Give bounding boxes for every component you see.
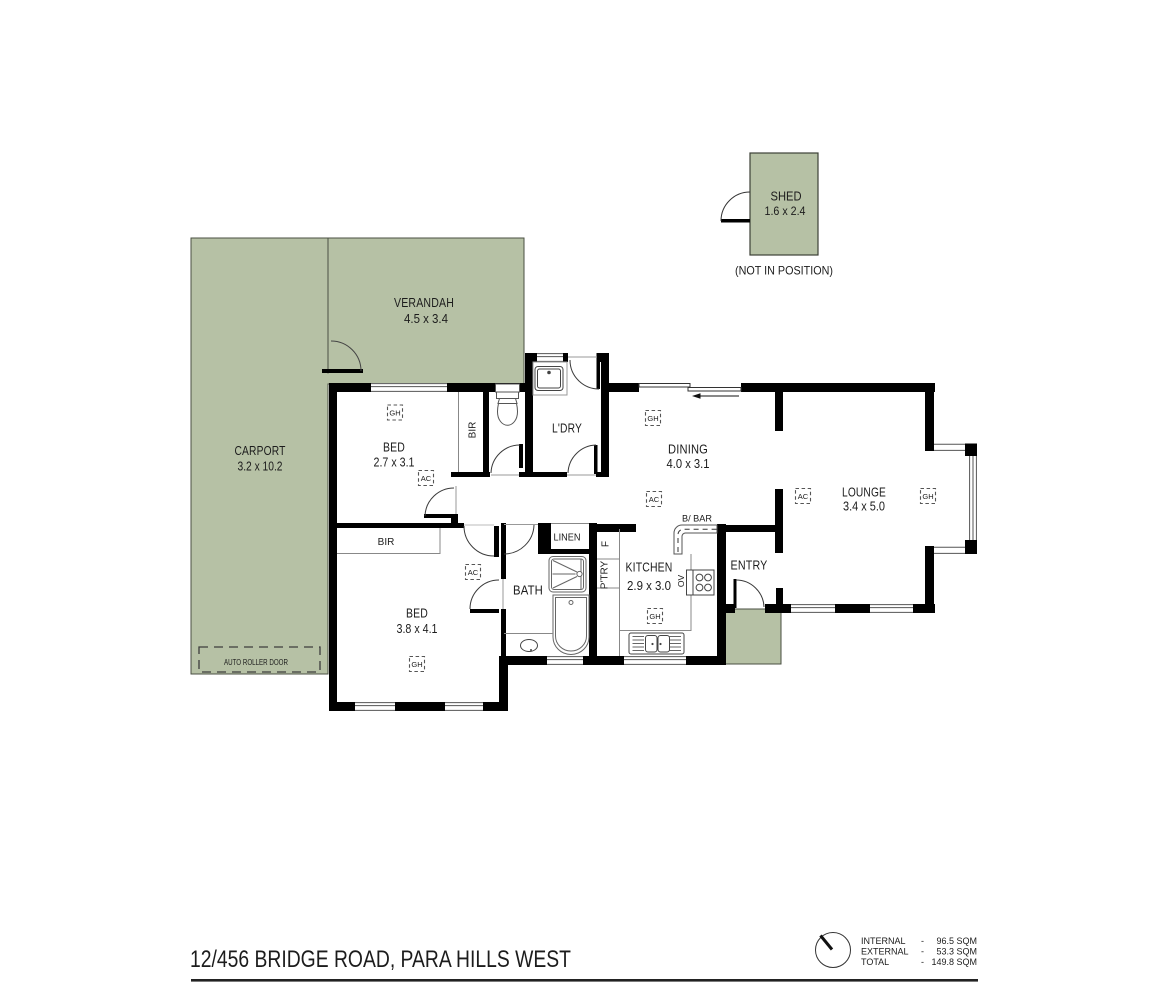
svg-text:AC: AC xyxy=(798,492,809,501)
svg-text:GH: GH xyxy=(649,612,660,621)
svg-text:LOUNGE: LOUNGE xyxy=(842,485,886,500)
svg-text:(NOT IN POSITION): (NOT IN POSITION) xyxy=(735,264,833,278)
svg-text:12/456 BRIDGE ROAD, PARA HILLS: 12/456 BRIDGE ROAD, PARA HILLS WEST xyxy=(190,946,571,973)
svg-text:BED: BED xyxy=(383,440,405,455)
svg-text:AUTO ROLLER DOOR: AUTO ROLLER DOOR xyxy=(224,658,288,667)
svg-text:F: F xyxy=(601,541,612,547)
svg-text:53.3 SQM: 53.3 SQM xyxy=(936,947,977,957)
svg-text:ENTRY: ENTRY xyxy=(731,558,768,573)
svg-text:BIR: BIR xyxy=(378,537,395,548)
svg-text:1.6 x 2.4: 1.6 x 2.4 xyxy=(765,204,806,218)
svg-text:BATH: BATH xyxy=(513,583,543,598)
svg-text:INTERNAL: INTERNAL xyxy=(861,936,906,946)
svg-text:TOTAL: TOTAL xyxy=(861,957,889,967)
svg-text:AC: AC xyxy=(468,568,479,577)
svg-text:P'TRY: P'TRY xyxy=(600,560,611,589)
svg-text:EXTERNAL: EXTERNAL xyxy=(861,947,909,957)
svg-text:2.9 x 3.0: 2.9 x 3.0 xyxy=(627,578,671,593)
svg-text:AC: AC xyxy=(649,495,660,504)
svg-text:AC: AC xyxy=(421,474,432,483)
svg-text:-: - xyxy=(921,957,924,967)
svg-text:KITCHEN: KITCHEN xyxy=(626,560,673,575)
svg-text:3.8 x 4.1: 3.8 x 4.1 xyxy=(397,621,438,636)
svg-text:CARPORT: CARPORT xyxy=(235,443,286,458)
svg-text:DINING: DINING xyxy=(668,442,708,457)
svg-text:-: - xyxy=(921,936,924,946)
svg-text:SHED: SHED xyxy=(771,190,802,204)
svg-text:OV: OV xyxy=(676,575,686,588)
svg-text:BIR: BIR xyxy=(468,422,479,439)
svg-text:GH: GH xyxy=(922,492,933,501)
svg-text:3.2 x 10.2: 3.2 x 10.2 xyxy=(238,459,283,474)
svg-text:3.4 x 5.0: 3.4 x 5.0 xyxy=(843,499,885,514)
svg-text:149.8 SQM: 149.8 SQM xyxy=(931,957,977,967)
svg-text:GH: GH xyxy=(389,408,400,417)
svg-text:96.5 SQM: 96.5 SQM xyxy=(936,936,977,946)
svg-text:GH: GH xyxy=(411,660,422,669)
svg-text:BED: BED xyxy=(406,606,428,621)
svg-text:GH: GH xyxy=(647,414,658,423)
svg-text:LINEN: LINEN xyxy=(554,533,581,544)
svg-text:VERANDAH: VERANDAH xyxy=(394,295,454,310)
svg-text:4.5 x 3.4: 4.5 x 3.4 xyxy=(404,311,448,326)
svg-text:-: - xyxy=(921,947,924,957)
svg-text:L'DRY: L'DRY xyxy=(552,421,582,436)
svg-text:4.0 x 3.1: 4.0 x 3.1 xyxy=(667,456,710,471)
svg-text:B/ BAR: B/ BAR xyxy=(682,514,713,524)
svg-text:2.7 x 3.1: 2.7 x 3.1 xyxy=(374,455,415,470)
